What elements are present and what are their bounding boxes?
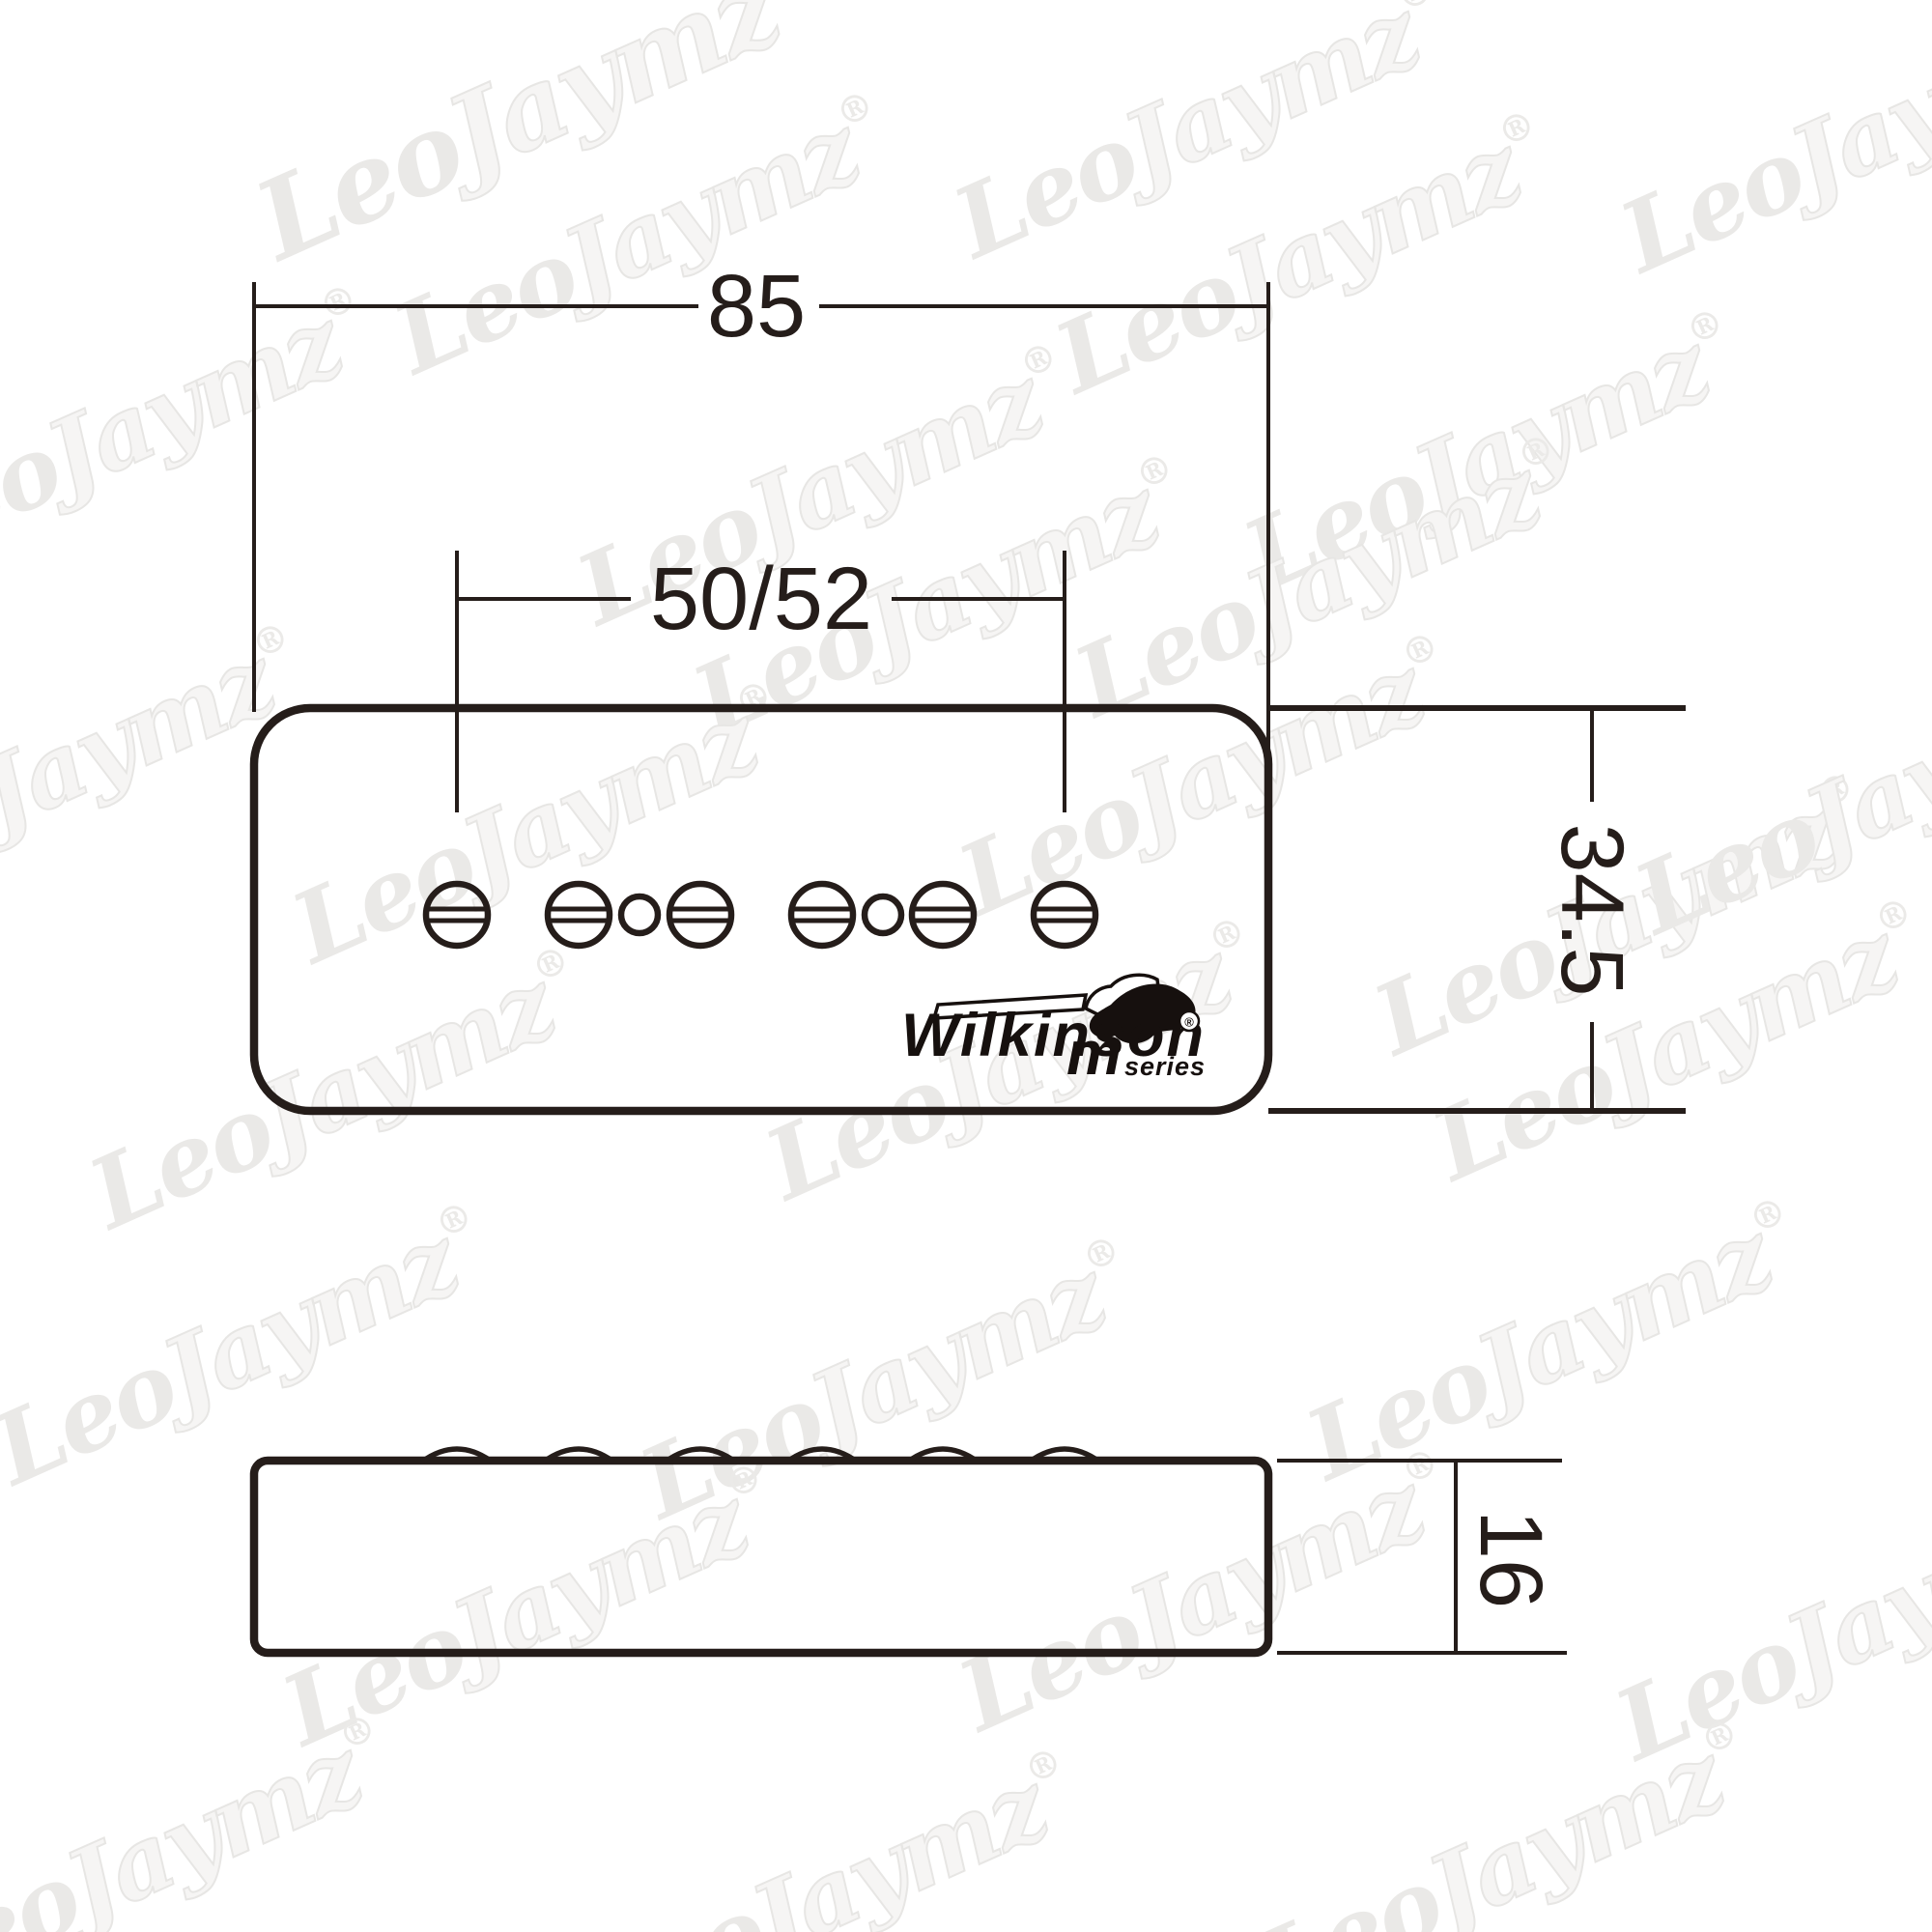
dimension-text-body-depth: 16 [1462, 1510, 1560, 1608]
dimension-text-pole-spacing: 50/52 [650, 550, 872, 648]
pole-screw-5 [912, 884, 974, 946]
pole-screw-6 [1034, 884, 1095, 946]
technical-drawing-page: LeoJaymz®LeoJaymz®LeoJaymz®LeoJaymz®LeoJ… [0, 0, 1932, 1932]
logo-registered-mark: ® [1184, 1015, 1194, 1030]
wilkinson-logo: Wilkinson ® m series [901, 975, 1206, 1088]
mounting-hole-2 [865, 896, 901, 933]
pole-screw-2 [548, 884, 610, 946]
pole-screw-3 [669, 884, 731, 946]
side-view-outline [254, 1461, 1268, 1653]
logo-series-initial: m [1066, 1018, 1122, 1088]
dimension-text-overall-length: 85 [707, 257, 806, 355]
pole-screw-4 [791, 884, 853, 946]
mounting-hole-1 [621, 896, 658, 933]
logo-series-label: series [1124, 1052, 1206, 1081]
pickup-technical-drawing: 85 50/52 34.5 [0, 0, 1932, 1932]
pole-screws [426, 884, 1095, 946]
dimension-text-body-height: 34.5 [1543, 823, 1641, 996]
pole-screw-1 [426, 884, 488, 946]
